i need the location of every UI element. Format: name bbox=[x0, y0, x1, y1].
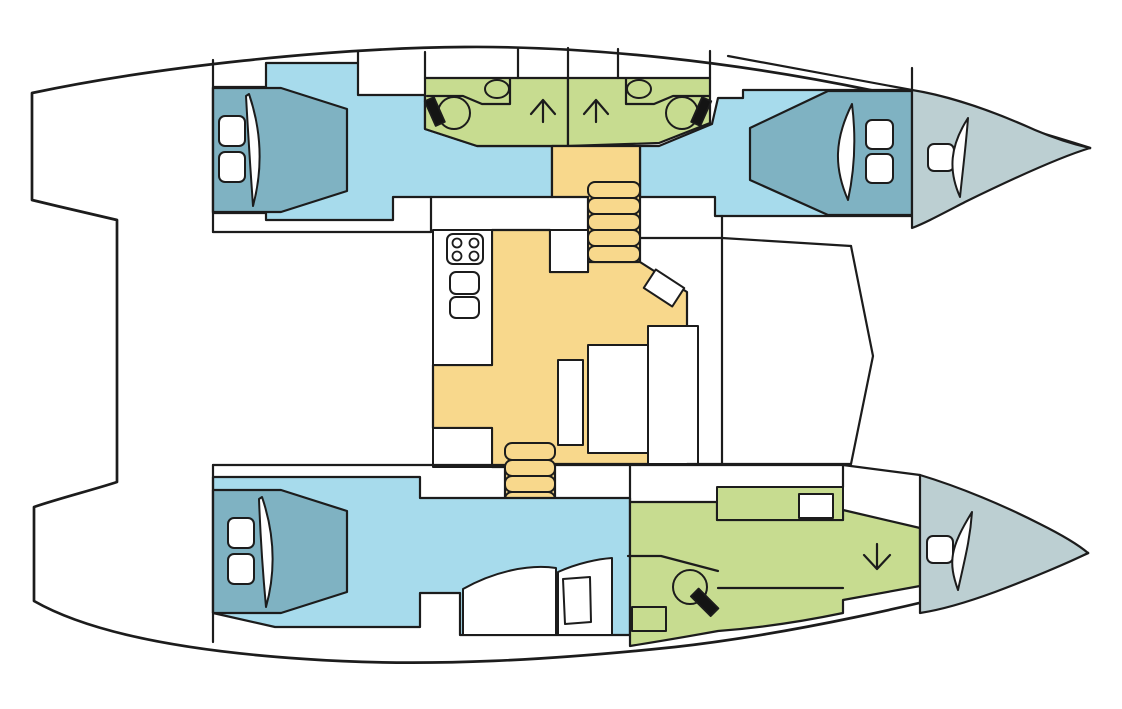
hatch-cushion bbox=[927, 536, 953, 563]
pillow bbox=[219, 116, 245, 146]
saloon-table bbox=[588, 345, 648, 453]
stair-step bbox=[588, 230, 640, 246]
stair-step bbox=[505, 460, 555, 476]
stair-step bbox=[588, 246, 640, 262]
burner bbox=[453, 252, 462, 261]
windshield-v bbox=[851, 246, 873, 464]
pillow bbox=[228, 518, 254, 548]
pillow bbox=[866, 154, 893, 183]
counter-basin bbox=[799, 494, 833, 518]
burner bbox=[453, 239, 462, 248]
stair-step bbox=[505, 476, 555, 492]
nav-wall bbox=[640, 238, 851, 246]
island-counter bbox=[550, 230, 588, 272]
burner bbox=[470, 239, 479, 248]
stairs-to-port-hull bbox=[588, 182, 640, 262]
galley-sink bbox=[450, 272, 479, 294]
pillow bbox=[866, 120, 893, 149]
catamaran-floor-plan bbox=[0, 0, 1122, 709]
pillow bbox=[228, 554, 254, 584]
stair-step bbox=[505, 443, 555, 460]
bathroom-cabinet bbox=[632, 607, 666, 631]
toilet-icon bbox=[438, 97, 470, 129]
washbasin-icon bbox=[485, 80, 509, 98]
port-aft-berth bbox=[213, 88, 347, 212]
owner-bathroom-floor bbox=[630, 502, 920, 646]
floor-plan-svg bbox=[0, 0, 1122, 709]
stair-step bbox=[588, 214, 640, 230]
side-table bbox=[563, 577, 591, 624]
saloon-galley bbox=[433, 146, 698, 508]
stair-step bbox=[588, 198, 640, 214]
starboard-aft-berth bbox=[213, 490, 347, 613]
coachroof-edge bbox=[728, 56, 912, 90]
washbasin-icon bbox=[627, 80, 651, 98]
galley-cabinet bbox=[433, 428, 492, 467]
galley-sink bbox=[450, 297, 479, 318]
port-hull bbox=[213, 63, 1090, 228]
burner bbox=[470, 252, 479, 261]
toilet-icon bbox=[666, 97, 698, 129]
starboard-hull bbox=[213, 475, 1088, 646]
bow-deck-edge bbox=[843, 465, 920, 475]
bench bbox=[558, 360, 583, 445]
bench bbox=[648, 326, 698, 464]
pillow bbox=[219, 152, 245, 182]
stair-step bbox=[588, 182, 640, 198]
hatch-cushion bbox=[928, 144, 954, 171]
